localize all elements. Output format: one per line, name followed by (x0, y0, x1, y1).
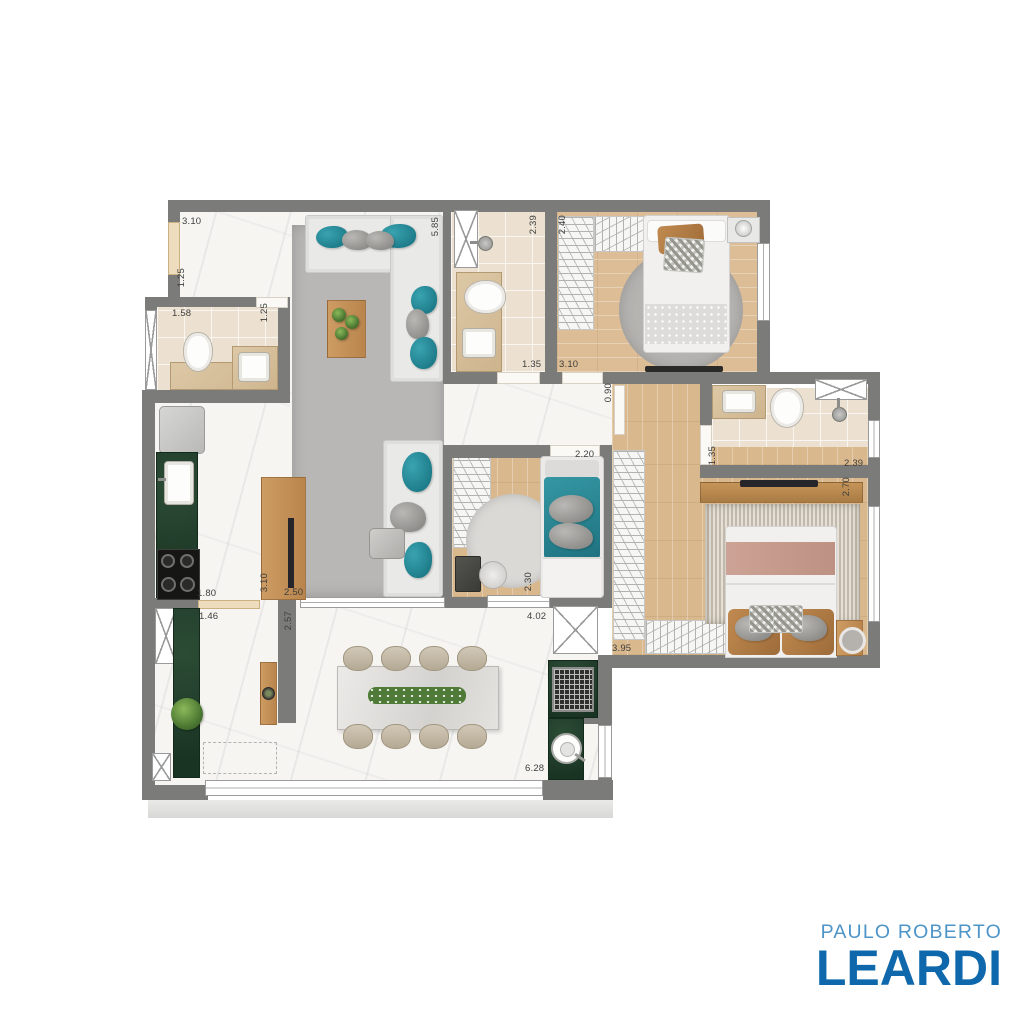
dimension-label: 3.10 (559, 359, 578, 370)
dimension-label: 4.02 (527, 611, 546, 622)
dimension-label: 5.85 (430, 217, 441, 236)
dimension-label: 1.58 (172, 308, 191, 319)
dimension-label: 2.40 (557, 215, 568, 234)
dimension-label: 2.70 (841, 477, 852, 496)
dimension-label: 1.46 (199, 611, 218, 622)
floor-plan-image: 3.101.581.353.102.202.393.951.801.462.50… (0, 0, 1024, 1024)
dimension-label: 2.39 (528, 215, 539, 234)
dimension-label: 2.57 (283, 611, 294, 630)
logo: PAULO ROBERTO LEARDI (816, 921, 1002, 993)
dimension-label: 2.39 (844, 458, 863, 469)
dimension-label: 2.20 (575, 449, 594, 460)
floor-plan: 3.101.581.353.102.202.393.951.801.462.50… (0, 0, 1024, 1024)
dimension-labels-layer: 3.101.581.353.102.202.393.951.801.462.50… (0, 0, 1024, 1024)
dimension-label: 1.25 (259, 303, 270, 322)
logo-line2: LEARDI (816, 945, 1002, 993)
dimension-label: 1.35 (522, 359, 541, 370)
dimension-label: 3.10 (259, 573, 270, 592)
dimension-label: 2.30 (523, 572, 534, 591)
dimension-label: 2.50 (284, 587, 303, 598)
dimension-label: 3.10 (182, 216, 201, 227)
dimension-label: 1.80 (197, 588, 216, 599)
dimension-label: 6.28 (525, 763, 544, 774)
dimension-label: 1.25 (176, 268, 187, 287)
dimension-label: 1.35 (707, 446, 718, 465)
dimension-label: 0.90 (603, 383, 614, 402)
dimension-label: 3.95 (612, 643, 631, 654)
